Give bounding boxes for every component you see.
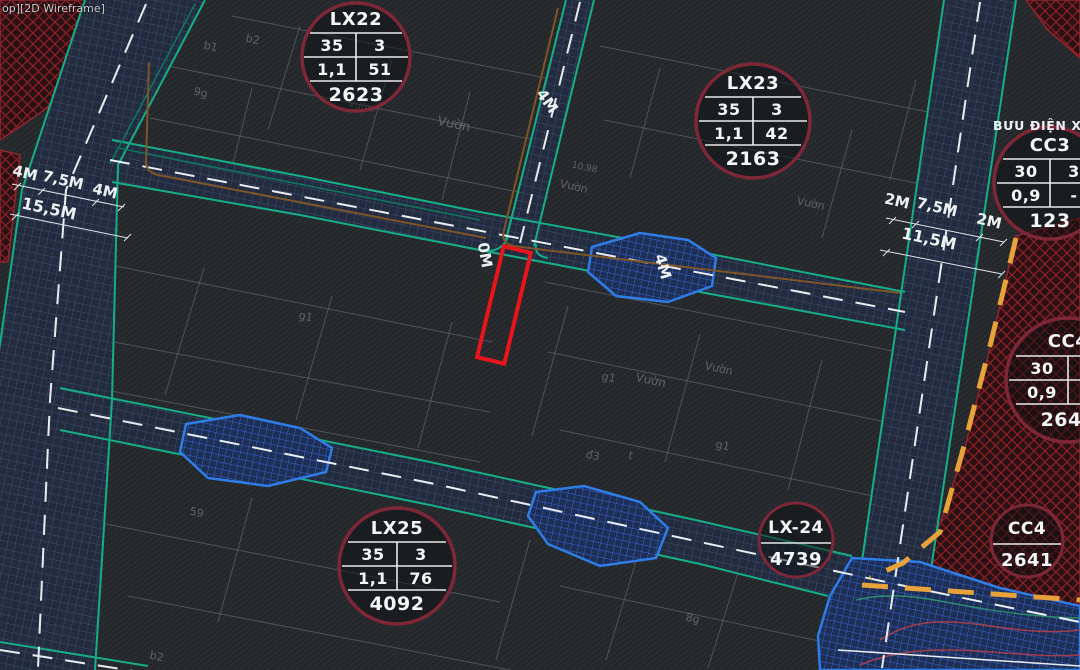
balloon-cell: 1,1: [317, 60, 347, 79]
balloon-cell: 1,1: [358, 569, 388, 588]
balloon-title: LX22: [330, 9, 382, 30]
zone-balloon-cc4-small: CC4 2641: [991, 505, 1063, 577]
balloon-total: 2641: [1001, 550, 1053, 571]
balloon-title: CC3: [1030, 135, 1070, 156]
balloon-total: 4092: [370, 593, 425, 615]
map-canvas[interactable]: Vườn Vườn Vườn Vườn Vườn Vườn g1 g1 g1 b…: [0, 0, 1080, 670]
balloon-cell: 3: [415, 545, 427, 564]
zone-balloon-lx24: LX-24 4739: [759, 503, 833, 577]
balloon-cell: 42: [765, 124, 788, 143]
balloon-cell: 35: [361, 545, 384, 564]
balloon-title: LX-24: [768, 518, 824, 538]
balloon-cell: 30: [1014, 162, 1037, 181]
balloon-total: 4739: [770, 549, 822, 570]
zone-balloon-lx22: LX22 35 3 1,1 51 2623: [302, 3, 410, 111]
balloon-title: CC4: [1008, 519, 1046, 539]
balloon-cell: 35: [320, 36, 343, 55]
balloon-total: 2623: [329, 84, 384, 106]
zone-balloon-lx25: LX25 35 3 1,1 76 4092: [339, 508, 455, 624]
balloon-cell: 76: [409, 569, 432, 588]
balloon-total: 2641: [1041, 409, 1080, 431]
balloon-title: CC4: [1048, 331, 1080, 352]
balloon-title: LX23: [727, 73, 779, 94]
cad-viewport[interactable]: Vườn Vườn Vườn Vườn Vườn Vườn g1 g1 g1 b…: [0, 0, 1080, 670]
balloon-total: 2163: [726, 148, 781, 170]
balloon-cell: 35: [717, 100, 740, 119]
balloon-cell: 0,9: [1027, 383, 1057, 402]
balloon-cell: 3: [374, 36, 386, 55]
balloon-cell: 3: [1068, 162, 1080, 181]
balloon-cell: 51: [368, 60, 391, 79]
balloon-total: 123: [1029, 210, 1070, 232]
viewport-mode-label: op][2D Wireframe]: [2, 2, 105, 15]
balloon-cell: 30: [1030, 359, 1053, 378]
balloon-cell: -: [1070, 186, 1077, 205]
place-label: BƯU ĐIỆN XÃ U: [993, 118, 1080, 133]
balloon-cell: 1,1: [714, 124, 744, 143]
balloon-cell: 0,9: [1011, 186, 1041, 205]
zone-balloon-lx23: LX23 35 3 1,1 42 2163: [696, 64, 810, 178]
balloon-title: LX25: [371, 518, 423, 539]
balloon-cell: 3: [771, 100, 783, 119]
